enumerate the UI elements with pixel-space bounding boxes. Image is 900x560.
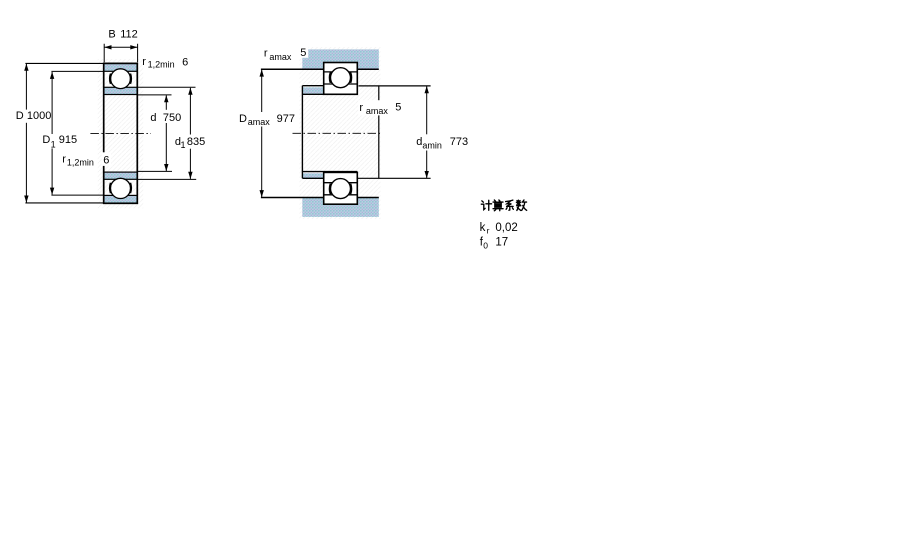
svg-text:r: r [359, 102, 363, 114]
svg-text:112: 112 [120, 29, 138, 41]
svg-text:k: k [480, 222, 486, 234]
svg-text:0,02: 0,02 [495, 222, 517, 234]
svg-text:amax: amax [269, 52, 292, 62]
svg-text:750: 750 [163, 112, 181, 124]
svg-text:1,2min: 1,2min [67, 158, 94, 168]
svg-text:amax: amax [248, 117, 271, 127]
svg-text:D: D [42, 134, 50, 146]
svg-text:d: d [150, 112, 156, 124]
svg-text:D: D [16, 110, 24, 122]
svg-text:B: B [108, 29, 115, 41]
svg-text:773: 773 [450, 136, 468, 148]
svg-text:915: 915 [59, 134, 77, 146]
svg-text:r: r [264, 48, 268, 60]
svg-text:1: 1 [181, 140, 186, 150]
svg-text:0: 0 [483, 240, 488, 250]
svg-text:6: 6 [182, 56, 188, 68]
svg-text:amax: amax [366, 106, 389, 116]
svg-text:6: 6 [103, 154, 109, 166]
svg-text:r: r [62, 154, 66, 166]
svg-text:5: 5 [395, 102, 401, 114]
svg-text:r: r [142, 56, 146, 68]
svg-text:r: r [487, 225, 490, 235]
svg-text:17: 17 [495, 237, 508, 249]
svg-text:amin: amin [422, 141, 442, 151]
svg-text:1: 1 [51, 139, 56, 149]
svg-text:977: 977 [277, 113, 295, 125]
svg-text:D: D [239, 113, 247, 125]
svg-text:1000: 1000 [27, 110, 51, 122]
svg-text:835: 835 [187, 136, 205, 148]
svg-text:1,2min: 1,2min [148, 59, 175, 69]
svg-text:5: 5 [300, 47, 306, 59]
